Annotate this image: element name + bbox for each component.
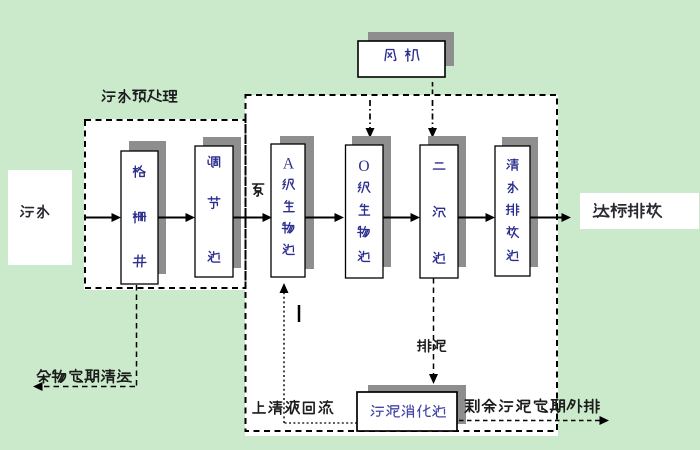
svg-text:O: O xyxy=(358,158,369,175)
svg-text:A: A xyxy=(283,155,295,172)
